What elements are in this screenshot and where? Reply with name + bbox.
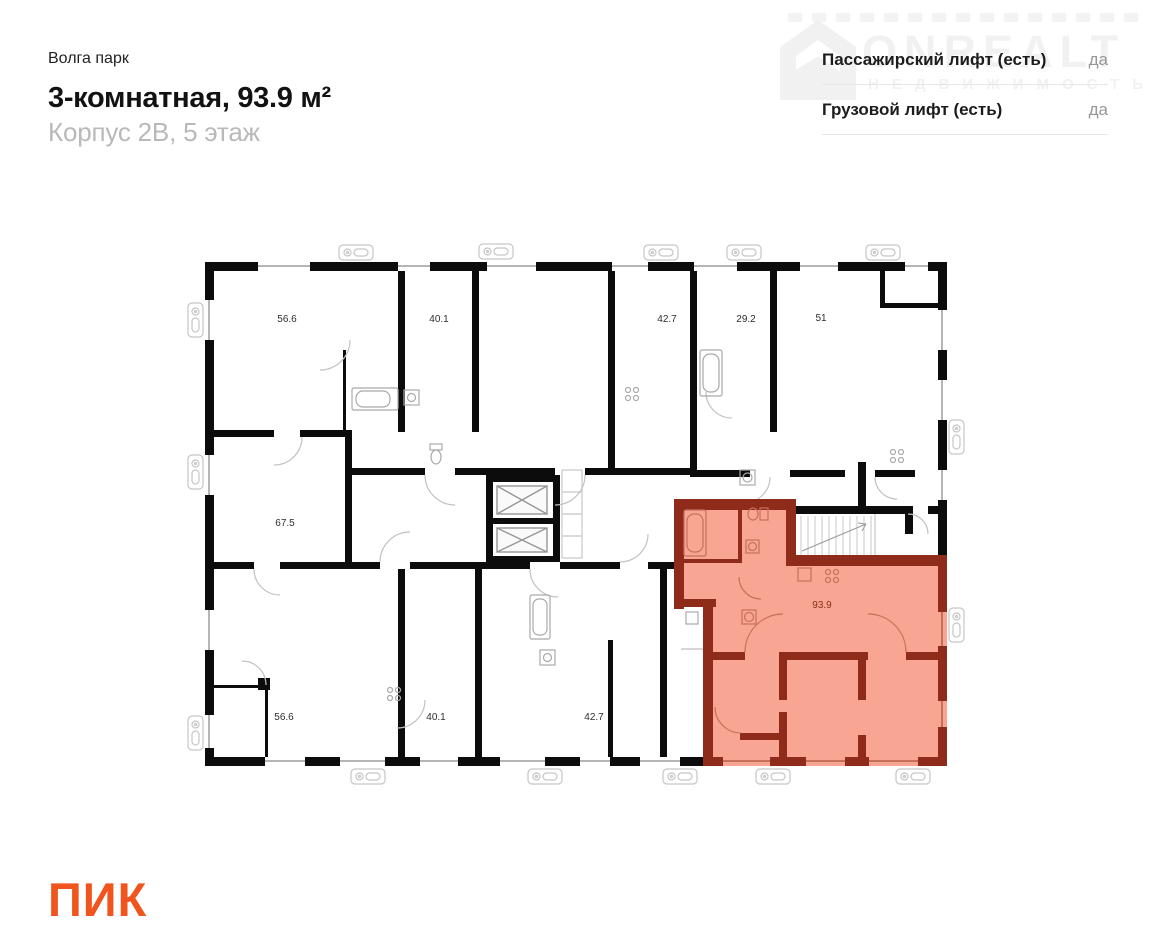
area-label: 42.7 xyxy=(584,712,604,723)
area-label: 67.5 xyxy=(275,518,295,529)
area-label: 40.1 xyxy=(429,314,449,325)
area-label: 56.6 xyxy=(274,712,294,723)
area-label: 40.1 xyxy=(426,712,446,723)
area-label: 51 xyxy=(815,313,827,324)
stairs xyxy=(801,514,875,557)
highlighted-apartment xyxy=(674,499,947,766)
area-label-highlighted: 93.9 xyxy=(812,600,832,611)
area-label: 29.2 xyxy=(736,314,756,325)
floor-plan-image: 56.6 40.1 42.7 29.2 51 67.5 56.6 40.1 42… xyxy=(0,0,1152,910)
area-label: 42.7 xyxy=(657,314,677,325)
pik-logo[interactable]: ПИК xyxy=(48,876,147,923)
elevator-core xyxy=(497,470,582,558)
area-label: 56.6 xyxy=(277,314,297,325)
